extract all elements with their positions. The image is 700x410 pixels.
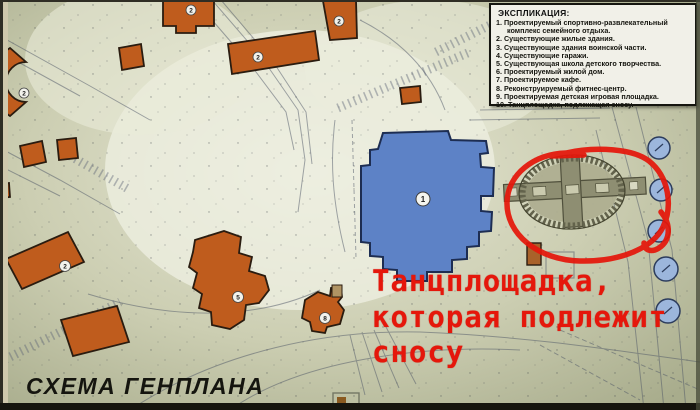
building-annex xyxy=(332,285,342,297)
photo-edge xyxy=(3,0,8,410)
label-school: 5 xyxy=(233,292,244,303)
label-sports-complex: 1 xyxy=(416,192,430,206)
genplan-photo: 2 2 2 2 2 5 8 xyxy=(0,0,700,410)
building-small xyxy=(119,44,144,70)
building-small xyxy=(20,141,46,167)
label-residential-vertical: 2 xyxy=(334,16,344,26)
photo-edge xyxy=(0,0,700,2)
label-residential-diagonal: 2 xyxy=(60,261,71,272)
page-title: СХЕМА ГЕНПЛАНА xyxy=(26,373,264,400)
annotation-line-2: которая подлежит xyxy=(372,302,667,332)
svg-text:2: 2 xyxy=(22,91,26,98)
svg-text:8: 8 xyxy=(323,316,327,323)
label-residential-top: 2 xyxy=(186,5,196,15)
label-residential-arc: 2 xyxy=(19,88,29,98)
legend-item: 1. Проектируемый спортивно-развлекательн… xyxy=(496,19,691,35)
svg-text:2: 2 xyxy=(256,55,260,62)
annotation-line-1: Танцплощадка, xyxy=(372,266,612,296)
annotation-line-3: сносу xyxy=(372,337,464,367)
building-small xyxy=(57,138,78,160)
legend-title: ЭКСПЛИКАЦИЯ: xyxy=(498,8,691,18)
photo-edge xyxy=(696,0,700,410)
label-residential-row: 2 xyxy=(253,52,263,62)
legend-box: ЭКСПЛИКАЦИЯ: 1. Проектируемый спортивно-… xyxy=(489,3,697,106)
svg-text:1: 1 xyxy=(421,195,426,204)
label-fitness-center: 8 xyxy=(320,313,331,324)
svg-text:2: 2 xyxy=(189,8,193,15)
legend-item: 10. Танцплощадка, подлежащая сносу. xyxy=(496,101,691,109)
svg-text:5: 5 xyxy=(236,295,240,302)
svg-text:2: 2 xyxy=(63,264,67,271)
svg-text:2: 2 xyxy=(337,19,341,26)
building-small xyxy=(400,86,421,104)
photo-edge xyxy=(0,403,700,410)
